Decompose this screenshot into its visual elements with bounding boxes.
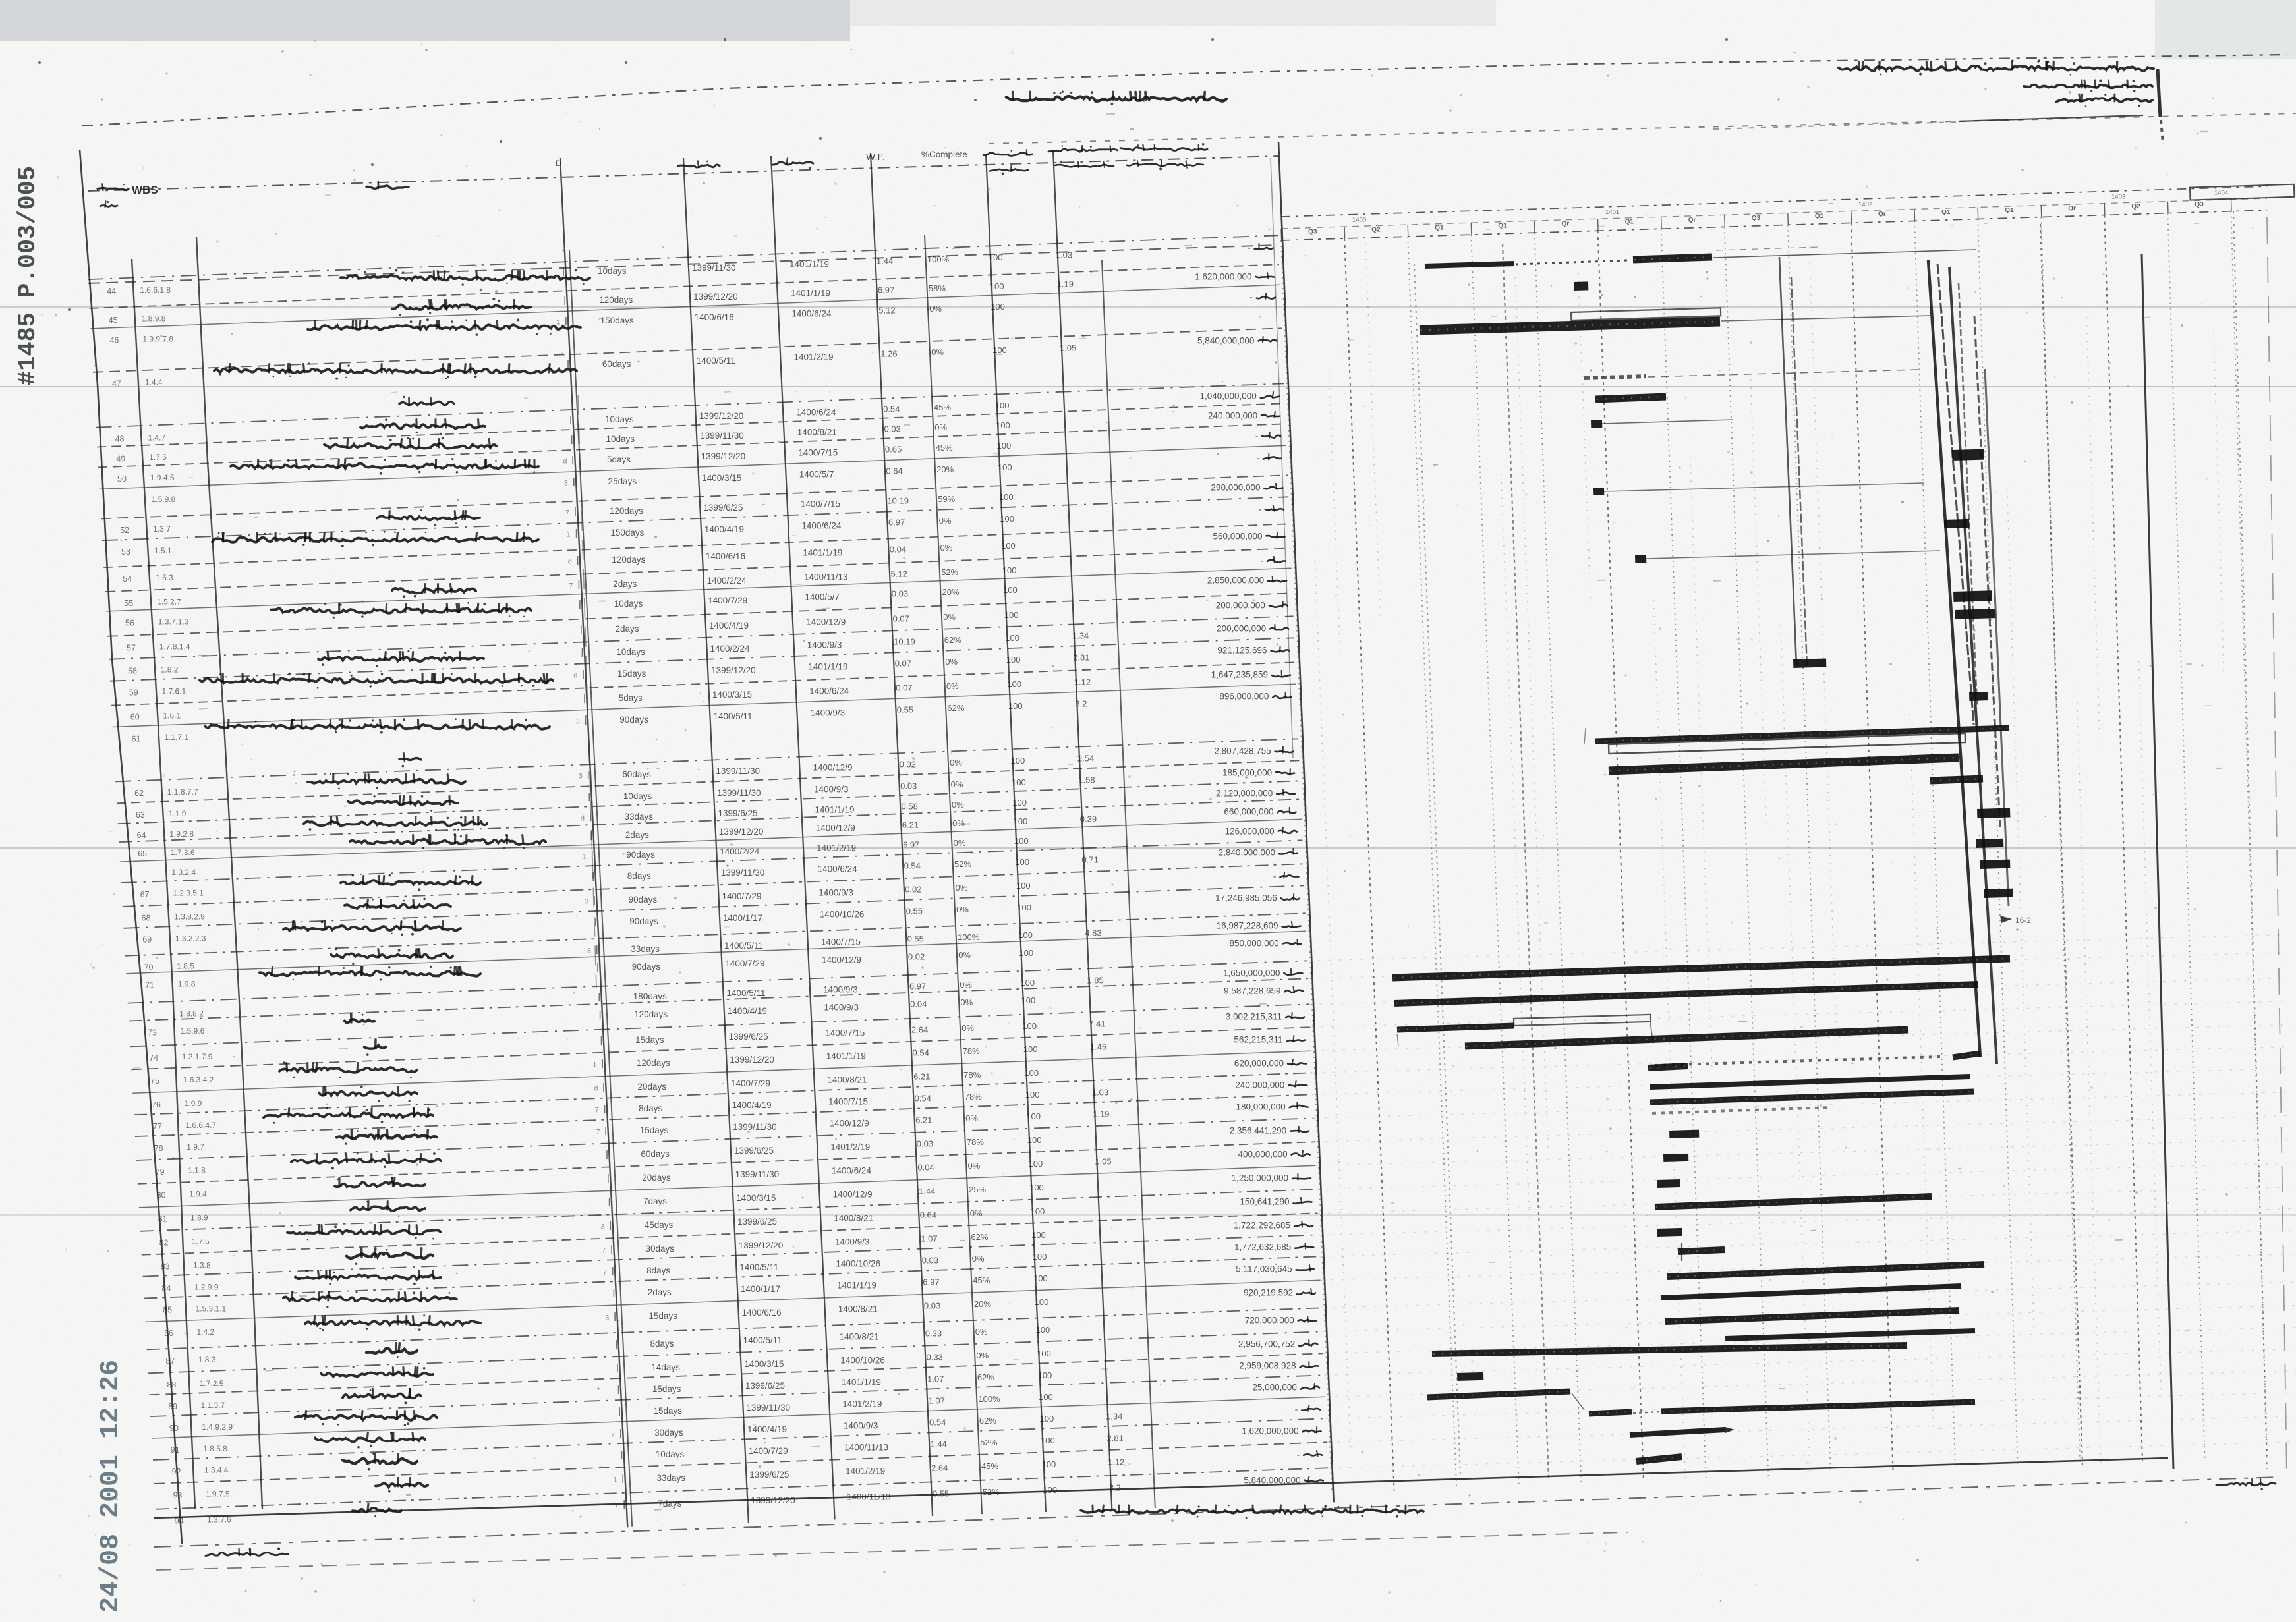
svg-text:1,722,292,685: 1,722,292,685	[1234, 1221, 1290, 1231]
svg-text:56: 56	[125, 619, 134, 628]
svg-text:1.4.2: 1.4.2	[197, 1328, 215, 1337]
svg-text:-: -	[1249, 293, 1253, 302]
svg-text:1400/7/15: 1400/7/15	[801, 499, 840, 509]
svg-text:-: -	[1261, 556, 1264, 566]
svg-text:74: 74	[149, 1053, 158, 1063]
svg-text:81: 81	[158, 1215, 167, 1224]
svg-text:10days: 10days	[616, 647, 645, 657]
svg-text:Q1: Q1	[2005, 207, 2014, 214]
svg-text:62%: 62%	[977, 1372, 994, 1382]
svg-text:1.03: 1.03	[1092, 1087, 1108, 1097]
svg-text:1.2.3.5.1: 1.2.3.5.1	[173, 889, 204, 898]
svg-text:0%: 0%	[950, 758, 962, 768]
svg-text:100: 100	[1020, 978, 1035, 988]
svg-text:1.34: 1.34	[1106, 1411, 1122, 1421]
svg-text:1400/7/29: 1400/7/29	[725, 959, 764, 968]
svg-text:100: 100	[1029, 1159, 1043, 1169]
svg-text:7days: 7days	[658, 1499, 681, 1509]
svg-text:0.55: 0.55	[897, 705, 913, 715]
svg-text:1400/10/26: 1400/10/26	[840, 1355, 885, 1365]
svg-text:10.19: 10.19	[894, 637, 915, 647]
svg-text:15days: 15days	[635, 1035, 664, 1045]
svg-text:d: d	[568, 558, 572, 566]
svg-text:67: 67	[140, 890, 150, 899]
svg-text:d: d	[594, 1085, 598, 1093]
svg-text:0%: 0%	[965, 1113, 978, 1123]
svg-text:Q3: Q3	[1308, 229, 1317, 236]
svg-text:1.9.7: 1.9.7	[187, 1142, 204, 1152]
svg-text:1401/2/19: 1401/2/19	[842, 1399, 882, 1409]
svg-text:0.03: 0.03	[917, 1139, 933, 1149]
svg-text:2,956,700,752: 2,956,700,752	[1238, 1339, 1295, 1349]
svg-text:68: 68	[142, 914, 151, 923]
svg-text:64: 64	[137, 831, 146, 840]
svg-text:100: 100	[1039, 1392, 1053, 1402]
svg-text:100: 100	[1007, 679, 1021, 689]
svg-text:62%: 62%	[944, 635, 961, 645]
svg-text:0%: 0%	[940, 543, 953, 553]
svg-text:100%: 100%	[958, 932, 980, 942]
svg-text:100: 100	[1041, 1436, 1055, 1445]
svg-text:1401/1/19: 1401/1/19	[837, 1280, 876, 1290]
svg-text:5.12: 5.12	[891, 569, 907, 579]
svg-text:100: 100	[1018, 930, 1033, 940]
svg-text:Q3: Q3	[2195, 201, 2204, 208]
svg-text:100: 100	[1021, 995, 1036, 1005]
svg-text:25%: 25%	[969, 1185, 986, 1194]
svg-text:1400/12/9: 1400/12/9	[830, 1118, 869, 1128]
svg-text:0.03: 0.03	[884, 424, 901, 434]
svg-text:100: 100	[1006, 655, 1021, 665]
svg-text:10days: 10days	[614, 599, 643, 609]
svg-text:100: 100	[1031, 1230, 1046, 1240]
svg-text:1401/2/19: 1401/2/19	[846, 1466, 885, 1476]
svg-text:100: 100	[1040, 1414, 1054, 1424]
svg-text:1.44: 1.44	[876, 256, 893, 266]
svg-text:1.3.7.1.3: 1.3.7.1.3	[158, 617, 189, 627]
svg-text:2,840,000,000: 2,840,000,000	[1219, 848, 1275, 858]
svg-text:1400/6/24: 1400/6/24	[832, 1165, 872, 1175]
svg-text:1.9.4: 1.9.4	[189, 1190, 207, 1199]
svg-text:1400/1/17: 1400/1/17	[741, 1284, 780, 1294]
svg-text:20%: 20%	[936, 464, 954, 474]
svg-text:1400/9/3: 1400/9/3	[844, 1420, 878, 1430]
svg-text:120days: 120days	[634, 1009, 668, 1019]
svg-text:1: 1	[583, 853, 587, 861]
svg-text:53: 53	[121, 547, 130, 557]
svg-text:6.21: 6.21	[915, 1115, 932, 1125]
svg-text:1399/11/30: 1399/11/30	[735, 1169, 780, 1179]
svg-text:100: 100	[1026, 1111, 1041, 1121]
svg-text:8days: 8days	[646, 1266, 670, 1275]
svg-text:1,250,000,000: 1,250,000,000	[1232, 1173, 1288, 1183]
svg-text:93: 93	[173, 1491, 183, 1500]
svg-text:100: 100	[1008, 701, 1023, 711]
svg-text:1.7.8.1.4: 1.7.8.1.4	[159, 642, 190, 652]
svg-text:1400/8/21: 1400/8/21	[828, 1075, 867, 1084]
svg-text:100: 100	[1033, 1273, 1048, 1283]
svg-text:120days: 120days	[610, 506, 643, 516]
svg-text:1403: 1403	[2111, 193, 2125, 200]
svg-text:2.64: 2.64	[911, 1025, 928, 1035]
svg-text:1.5.3.1.1: 1.5.3.1.1	[196, 1304, 227, 1313]
svg-text:6.97: 6.97	[903, 840, 919, 850]
svg-text:1400/5/11: 1400/5/11	[739, 1262, 778, 1272]
svg-text:2days: 2days	[648, 1287, 672, 1297]
svg-text:1399/12/20: 1399/12/20	[719, 827, 764, 837]
svg-text:1399/11/30: 1399/11/30	[746, 1403, 790, 1412]
svg-text:1.5.9.6: 1.5.9.6	[181, 1026, 205, 1036]
svg-text:78%: 78%	[963, 1046, 980, 1056]
svg-text:14days: 14days	[651, 1362, 680, 1372]
svg-text:%Complete: %Complete	[921, 150, 967, 159]
svg-text:0.02: 0.02	[905, 885, 921, 895]
svg-text:100: 100	[1014, 836, 1029, 846]
svg-text:1.6.6.1.8: 1.6.6.1.8	[140, 285, 171, 294]
svg-text:100: 100	[1031, 1206, 1045, 1216]
svg-text:1.5.1: 1.5.1	[154, 546, 172, 555]
svg-text:1.19: 1.19	[1057, 279, 1074, 289]
svg-text:120days: 120days	[599, 295, 633, 305]
svg-text:0.64: 0.64	[886, 466, 902, 476]
svg-text:1400/12/9: 1400/12/9	[806, 617, 846, 627]
svg-text:0%: 0%	[954, 838, 966, 848]
svg-text:100: 100	[1042, 1459, 1056, 1469]
svg-text:3.2: 3.2	[1109, 1482, 1121, 1492]
svg-text:100: 100	[1019, 948, 1033, 958]
svg-text:1400/6/24: 1400/6/24	[791, 308, 832, 318]
svg-text:100: 100	[1027, 1135, 1042, 1145]
svg-text:1399/11/30: 1399/11/30	[733, 1122, 777, 1132]
svg-text:200,000,000: 200,000,000	[1217, 624, 1266, 634]
svg-text:6.97: 6.97	[909, 982, 926, 992]
svg-text:16,987,228,609: 16,987,228,609	[1217, 921, 1278, 931]
svg-text:1400/6/16: 1400/6/16	[742, 1308, 782, 1318]
svg-text:1.8.2: 1.8.2	[161, 665, 179, 675]
svg-text:1.5.9.8: 1.5.9.8	[152, 495, 176, 504]
svg-text:1400/10/26: 1400/10/26	[820, 909, 865, 919]
svg-text:1400/4/19: 1400/4/19	[704, 524, 744, 534]
svg-text:Qr: Qr	[1562, 221, 1570, 228]
svg-text:80: 80	[157, 1191, 166, 1200]
svg-text:100: 100	[1014, 816, 1028, 826]
svg-text:1399/12/20: 1399/12/20	[693, 292, 738, 302]
svg-text:-: -	[1273, 872, 1277, 881]
svg-text:1399/11/30: 1399/11/30	[716, 766, 760, 776]
svg-text:0.54: 0.54	[915, 1094, 931, 1104]
svg-text:100: 100	[1012, 777, 1026, 787]
svg-text:1.03: 1.03	[1056, 250, 1072, 260]
svg-text:1.9.9.7.8: 1.9.9.7.8	[142, 335, 173, 344]
svg-text:1.6.6.4.7: 1.6.6.4.7	[185, 1121, 216, 1130]
svg-text:1400/3/15: 1400/3/15	[736, 1193, 776, 1203]
svg-text:1.58: 1.58	[1078, 775, 1095, 785]
svg-text:52%: 52%	[980, 1438, 997, 1447]
svg-text:1.7.3.6: 1.7.3.6	[171, 848, 195, 857]
svg-text:2.81: 2.81	[1107, 1433, 1124, 1443]
svg-text:45days: 45days	[645, 1220, 674, 1230]
svg-text:62%: 62%	[971, 1232, 988, 1242]
svg-text:3: 3	[585, 898, 588, 906]
svg-text:Qr: Qr	[2068, 205, 2076, 212]
svg-text:15days: 15days	[654, 1406, 683, 1416]
svg-text:78: 78	[154, 1144, 163, 1153]
svg-text:15days: 15days	[648, 1311, 677, 1321]
svg-text:70: 70	[144, 963, 154, 972]
svg-text:1400/9/3: 1400/9/3	[823, 984, 858, 994]
svg-text:1,772,632,685: 1,772,632,685	[1234, 1243, 1291, 1252]
svg-text:1401/1/19: 1401/1/19	[808, 661, 847, 671]
svg-text:57: 57	[127, 644, 136, 653]
svg-text:10days: 10days	[656, 1449, 685, 1459]
svg-text:48: 48	[115, 434, 125, 443]
svg-text:45%: 45%	[973, 1275, 990, 1285]
svg-text:1400/9/3: 1400/9/3	[807, 640, 842, 650]
svg-text:D: D	[556, 159, 561, 168]
svg-text:1.1.7.1: 1.1.7.1	[164, 733, 188, 742]
svg-text:7: 7	[602, 1247, 606, 1255]
svg-text:45%: 45%	[981, 1461, 998, 1471]
svg-text:7: 7	[565, 509, 569, 517]
svg-text:9,587,228,659: 9,587,228,659	[1224, 986, 1280, 996]
svg-text:720,000,000: 720,000,000	[1245, 1316, 1294, 1326]
svg-text:63: 63	[136, 810, 145, 820]
svg-text:1399/12/20: 1399/12/20	[730, 1055, 774, 1065]
svg-text:0.04: 0.04	[890, 545, 906, 555]
svg-text:90days: 90days	[632, 962, 661, 972]
svg-text:0.04: 0.04	[910, 999, 927, 1009]
svg-text:87: 87	[165, 1356, 175, 1366]
svg-text:1399/11/30: 1399/11/30	[721, 868, 765, 878]
svg-text:5,117,030,645: 5,117,030,645	[1236, 1264, 1292, 1274]
svg-text:180days: 180days	[633, 992, 667, 1001]
svg-text:0%: 0%	[939, 516, 952, 526]
svg-text:5,840,000,000: 5,840,000,000	[1197, 336, 1254, 346]
svg-text:1401/2/19: 1401/2/19	[830, 1142, 870, 1152]
svg-text:15days: 15days	[617, 669, 646, 679]
svg-text:7: 7	[603, 1269, 607, 1277]
svg-text:3: 3	[564, 480, 568, 488]
svg-text:6.21: 6.21	[913, 1072, 930, 1082]
svg-text:62: 62	[134, 789, 144, 798]
svg-text:1399/6/25: 1399/6/25	[729, 1032, 768, 1042]
svg-text:44: 44	[107, 287, 116, 296]
svg-text:1.6.1: 1.6.1	[163, 711, 181, 720]
svg-text:33days: 33days	[657, 1473, 686, 1483]
svg-text:1.7.5: 1.7.5	[192, 1237, 210, 1246]
svg-text:45%: 45%	[936, 443, 953, 453]
svg-text:1400/2/24: 1400/2/24	[720, 847, 760, 856]
svg-text:Q1: Q1	[1941, 209, 1951, 216]
svg-text:8days: 8days	[639, 1104, 662, 1113]
svg-text:1400/2/24: 1400/2/24	[710, 644, 751, 654]
svg-text:1400/9/3: 1400/9/3	[818, 887, 853, 897]
svg-text:0.33: 0.33	[925, 1329, 942, 1339]
svg-text:100: 100	[1005, 633, 1019, 643]
svg-text:1400/6/16: 1400/6/16	[695, 312, 734, 322]
svg-text:1,040,000,000: 1,040,000,000	[1199, 391, 1256, 401]
svg-text:1.5.3: 1.5.3	[156, 573, 173, 582]
svg-text:88: 88	[167, 1380, 176, 1389]
svg-text:1.85: 1.85	[1087, 975, 1103, 985]
svg-text:90days: 90days	[626, 850, 655, 860]
svg-text:1400/5/11: 1400/5/11	[714, 712, 753, 721]
svg-text:240,000,000: 240,000,000	[1208, 411, 1257, 421]
svg-text:1400/9/3: 1400/9/3	[824, 1002, 859, 1012]
svg-text:7: 7	[569, 582, 573, 590]
svg-text:2days: 2days	[616, 624, 639, 634]
svg-text:1.07: 1.07	[921, 1234, 937, 1244]
svg-text:1399/12/20: 1399/12/20	[701, 451, 746, 461]
svg-text:33days: 33days	[631, 944, 660, 954]
svg-text:79: 79	[156, 1167, 165, 1177]
svg-text:1399/11/30: 1399/11/30	[692, 263, 736, 273]
svg-text:0.54: 0.54	[913, 1048, 929, 1058]
svg-text:3: 3	[587, 947, 591, 955]
svg-text:1400/7/29: 1400/7/29	[722, 891, 762, 901]
svg-text:2.81: 2.81	[1073, 652, 1089, 662]
svg-text:54: 54	[123, 574, 132, 584]
svg-text:2.64: 2.64	[931, 1463, 948, 1473]
svg-text:562,215,311: 562,215,311	[1234, 1035, 1282, 1045]
svg-text:0.02: 0.02	[900, 760, 916, 769]
svg-text:0.55: 0.55	[906, 907, 923, 916]
svg-text:1.8.5.8: 1.8.5.8	[203, 1444, 227, 1453]
svg-text:150days: 150days	[610, 528, 644, 538]
svg-text:0%: 0%	[960, 997, 973, 1007]
svg-text:100: 100	[1038, 1370, 1052, 1380]
svg-text:1.8.3: 1.8.3	[198, 1355, 216, 1364]
svg-text:1.45: 1.45	[1090, 1042, 1106, 1051]
svg-text:d: d	[581, 815, 585, 823]
svg-text:1400/12/9: 1400/12/9	[822, 955, 861, 965]
svg-text:1400/1/17: 1400/1/17	[723, 913, 762, 923]
svg-text:1.4.9.2.9: 1.4.9.2.9	[202, 1422, 233, 1432]
svg-text:78%: 78%	[967, 1137, 984, 1147]
svg-text:1400/8/21: 1400/8/21	[838, 1304, 878, 1314]
svg-text:0.54: 0.54	[929, 1418, 946, 1428]
svg-text:200,000,000: 200,000,000	[1216, 601, 1265, 611]
svg-text:1399/12/20: 1399/12/20	[699, 411, 744, 421]
svg-text:3,002,215,311: 3,002,215,311	[1226, 1012, 1282, 1022]
svg-text:55: 55	[124, 599, 133, 608]
svg-text:1.2.1.7.9: 1.2.1.7.9	[182, 1052, 213, 1061]
svg-text:1399/12/20: 1399/12/20	[739, 1241, 784, 1250]
svg-text:-: -	[1258, 505, 1261, 515]
svg-text:100: 100	[998, 462, 1012, 472]
svg-text:100: 100	[999, 492, 1014, 502]
svg-text:0.39: 0.39	[1080, 814, 1097, 824]
svg-text:89: 89	[168, 1402, 177, 1411]
svg-text:0%: 0%	[970, 1208, 983, 1218]
svg-text:84: 84	[161, 1283, 171, 1293]
svg-text:77: 77	[153, 1122, 162, 1131]
svg-text:-: -	[1248, 243, 1251, 253]
svg-text:10days: 10days	[598, 266, 627, 276]
svg-text:1400/4/19: 1400/4/19	[728, 1006, 767, 1016]
svg-text:1401/1/19: 1401/1/19	[803, 547, 842, 557]
svg-text:60: 60	[130, 712, 140, 721]
svg-text:Q1: Q1	[1625, 219, 1634, 226]
svg-text:76: 76	[152, 1100, 161, 1109]
svg-text:0%: 0%	[976, 1351, 989, 1360]
svg-text:3: 3	[579, 773, 583, 781]
svg-text:Qr: Qr	[1688, 217, 1696, 224]
svg-text:0.03: 0.03	[892, 589, 908, 599]
svg-text:100: 100	[1035, 1297, 1049, 1307]
svg-text:60days: 60days	[622, 769, 651, 779]
svg-text:1401/1/19: 1401/1/19	[789, 259, 829, 269]
svg-text:50: 50	[117, 474, 127, 484]
svg-text:58: 58	[128, 667, 137, 676]
svg-text:0%: 0%	[968, 1161, 981, 1171]
svg-text:100: 100	[990, 281, 1004, 291]
svg-text:240,000,000: 240,000,000	[1235, 1080, 1284, 1090]
svg-text:1400/9/3: 1400/9/3	[835, 1237, 870, 1246]
svg-text:3: 3	[576, 718, 580, 726]
svg-text:1401/1/19: 1401/1/19	[842, 1377, 881, 1387]
svg-text:1,650,000,000: 1,650,000,000	[1223, 968, 1280, 978]
svg-text:1.1.3.7: 1.1.3.7	[201, 1401, 225, 1410]
svg-text:45%: 45%	[934, 403, 951, 412]
svg-text:0%: 0%	[934, 422, 947, 432]
svg-text:90days: 90days	[629, 895, 658, 905]
svg-text:73: 73	[148, 1028, 157, 1037]
svg-text:0.04: 0.04	[917, 1163, 934, 1173]
svg-text:4.83: 4.83	[1085, 928, 1101, 937]
svg-text:8days: 8days	[627, 871, 651, 881]
svg-text:1.1.8: 1.1.8	[188, 1166, 206, 1175]
svg-text:100: 100	[1017, 903, 1031, 912]
svg-text:24/08 2001 12:26: 24/08 2001 12:26	[96, 1360, 126, 1613]
svg-text:1.07: 1.07	[927, 1374, 944, 1384]
svg-text:1: 1	[567, 531, 571, 539]
svg-text:100: 100	[1012, 798, 1027, 808]
svg-text:1400/3/15: 1400/3/15	[712, 690, 752, 700]
svg-text:1.1.8.7.7: 1.1.8.7.7	[167, 787, 198, 797]
svg-text:100: 100	[1003, 585, 1018, 595]
svg-text:1.9.4.5: 1.9.4.5	[150, 473, 175, 482]
svg-text:1401/1/19: 1401/1/19	[815, 804, 854, 814]
svg-text:100: 100	[1036, 1325, 1050, 1335]
svg-text:1400/6/24: 1400/6/24	[818, 864, 858, 874]
svg-text:Q3: Q3	[1752, 215, 1761, 222]
svg-text:1400/12/9: 1400/12/9	[816, 823, 855, 833]
svg-text:1400/12/9: 1400/12/9	[813, 762, 853, 772]
svg-text:1400/5/7: 1400/5/7	[805, 592, 840, 601]
svg-text:1400/6/24: 1400/6/24	[796, 407, 836, 417]
svg-text:1400/7/29: 1400/7/29	[749, 1446, 788, 1456]
svg-text:6.21: 6.21	[902, 820, 919, 830]
svg-text:1.3.2.2.3: 1.3.2.2.3	[175, 934, 206, 943]
svg-text:1.44: 1.44	[919, 1187, 935, 1196]
svg-text:1400/9/3: 1400/9/3	[814, 784, 849, 794]
svg-text:2days: 2days	[625, 830, 649, 840]
svg-text:120days: 120days	[612, 555, 645, 565]
svg-text:1.9.7.5: 1.9.7.5	[206, 1490, 230, 1499]
svg-text:1.12: 1.12	[1108, 1457, 1124, 1467]
svg-text:1400/7/15: 1400/7/15	[798, 447, 838, 457]
svg-text:17,246,985,056: 17,246,985,056	[1215, 893, 1277, 903]
svg-text:1400/2/24: 1400/2/24	[707, 576, 747, 586]
svg-text:52%: 52%	[941, 567, 958, 577]
svg-text:100: 100	[1016, 881, 1031, 891]
svg-text:62%: 62%	[947, 703, 964, 713]
svg-text:660,000,000: 660,000,000	[1224, 807, 1273, 817]
svg-text:0%: 0%	[931, 347, 944, 357]
svg-text:1400: 1400	[1352, 217, 1366, 224]
svg-text:1400/12/9: 1400/12/9	[833, 1189, 873, 1199]
